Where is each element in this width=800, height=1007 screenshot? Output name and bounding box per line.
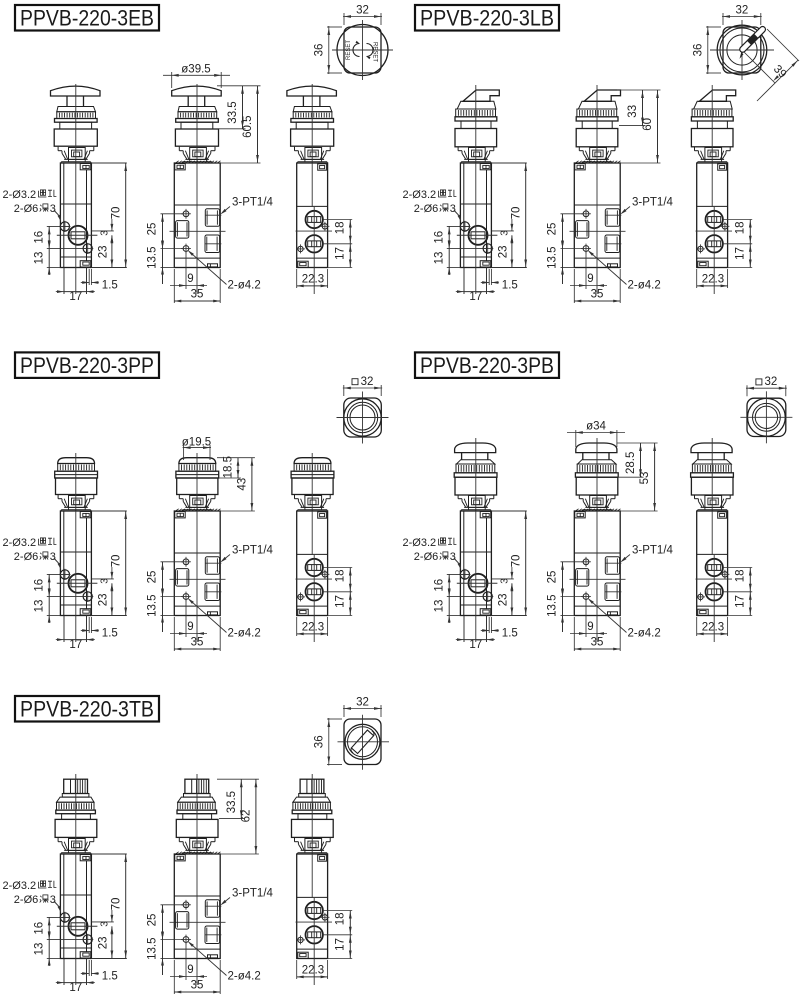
svg-text:17: 17: [335, 595, 347, 608]
svg-text:35: 35: [591, 289, 604, 301]
svg-text:3-PT1/4: 3-PT1/4: [232, 544, 274, 556]
svg-text:2-Ø3.2: 2-Ø3.2: [403, 189, 437, 201]
svg-text:53: 53: [639, 472, 651, 485]
svg-text:35: 35: [191, 289, 204, 301]
svg-text:18: 18: [735, 222, 747, 235]
svg-text:2-Ø3.2: 2-Ø3.2: [403, 537, 437, 549]
svg-text:70: 70: [511, 555, 523, 568]
svg-text:18: 18: [335, 222, 347, 235]
svg-text:22.3: 22.3: [302, 274, 324, 286]
svg-text:3: 3: [450, 203, 456, 215]
svg-text:16: 16: [434, 231, 446, 244]
svg-text:2-ø4.2: 2-ø4.2: [228, 628, 261, 640]
svg-text:2-ø4.2: 2-ø4.2: [628, 280, 661, 292]
svg-text:9: 9: [587, 621, 593, 633]
svg-text:3: 3: [50, 894, 56, 906]
svg-text:3-PT1/4: 3-PT1/4: [232, 887, 274, 899]
svg-text:PPVB-220-3PB: PPVB-220-3PB: [420, 353, 554, 378]
svg-text:PPVB-220-3LB: PPVB-220-3LB: [420, 6, 554, 31]
svg-text:23: 23: [98, 594, 110, 607]
svg-text:3: 3: [499, 230, 510, 236]
svg-text:RESET: RESET: [372, 42, 378, 62]
svg-text:9: 9: [187, 273, 193, 285]
svg-text:3: 3: [99, 921, 110, 927]
svg-text:60.5: 60.5: [242, 116, 254, 138]
svg-text:3: 3: [99, 578, 110, 584]
svg-text:70: 70: [111, 207, 123, 220]
svg-text:23: 23: [98, 246, 110, 259]
svg-text:62: 62: [240, 810, 252, 823]
svg-text:18: 18: [735, 570, 747, 583]
svg-text:17: 17: [69, 639, 82, 651]
svg-text:23: 23: [498, 246, 510, 259]
svg-text:22.3: 22.3: [702, 274, 724, 286]
svg-text:PPVB-220-3TB: PPVB-220-3TB: [20, 697, 154, 722]
svg-text:3-PT1/4: 3-PT1/4: [232, 196, 274, 208]
svg-text:2-ø4.2: 2-ø4.2: [628, 628, 661, 640]
svg-text:17: 17: [335, 247, 347, 260]
svg-text:36: 36: [693, 44, 705, 57]
svg-text:13.5: 13.5: [147, 595, 159, 617]
svg-text:1.5: 1.5: [502, 627, 518, 639]
svg-text:23: 23: [98, 937, 110, 950]
svg-text:18: 18: [335, 913, 347, 926]
svg-text:32: 32: [361, 376, 374, 388]
svg-text:16: 16: [34, 579, 46, 592]
svg-text:17: 17: [69, 982, 82, 994]
svg-text:3-PT1/4: 3-PT1/4: [632, 544, 674, 556]
svg-text:13: 13: [434, 252, 446, 265]
svg-text:18.5: 18.5: [223, 456, 235, 478]
svg-text:2-Ø6: 2-Ø6: [14, 203, 38, 215]
svg-text:2-ø4.2: 2-ø4.2: [228, 280, 261, 292]
svg-text:3-PT1/4: 3-PT1/4: [632, 196, 674, 208]
svg-text:3: 3: [450, 551, 456, 563]
svg-text:33: 33: [627, 105, 639, 118]
svg-text:25: 25: [147, 571, 159, 584]
svg-text:17: 17: [735, 595, 747, 608]
svg-text:13: 13: [34, 600, 46, 613]
svg-text:33.5: 33.5: [226, 791, 238, 813]
svg-text:ø19.5: ø19.5: [182, 437, 211, 449]
svg-text:2-Ø3.2: 2-Ø3.2: [3, 189, 37, 201]
svg-text:70: 70: [111, 898, 123, 911]
svg-text:36: 36: [314, 735, 326, 748]
svg-text:32: 32: [356, 5, 369, 17]
svg-text:2-ø4.2: 2-ø4.2: [228, 971, 261, 983]
svg-text:22.3: 22.3: [302, 965, 324, 977]
svg-text:2-Ø6: 2-Ø6: [414, 551, 438, 563]
svg-text:35: 35: [191, 980, 204, 992]
svg-text:PPVB-220-3EB: PPVB-220-3EB: [20, 6, 154, 31]
svg-text:13.5: 13.5: [547, 247, 559, 269]
svg-text:17: 17: [735, 247, 747, 260]
svg-text:32: 32: [736, 5, 749, 17]
svg-text:13: 13: [34, 252, 46, 265]
svg-text:28.5: 28.5: [625, 452, 637, 474]
svg-text:25: 25: [147, 914, 159, 927]
svg-text:33.5: 33.5: [227, 101, 239, 123]
svg-text:23: 23: [498, 594, 510, 607]
svg-text:9: 9: [187, 621, 193, 633]
svg-text:22.3: 22.3: [302, 622, 324, 634]
svg-text:17: 17: [69, 291, 82, 303]
svg-text:13.5: 13.5: [547, 595, 559, 617]
svg-text:1.5: 1.5: [102, 970, 118, 982]
svg-text:22.3: 22.3: [702, 622, 724, 634]
svg-text:PPVB-220-3PP: PPVB-220-3PP: [20, 353, 154, 378]
svg-text:2-Ø6: 2-Ø6: [14, 894, 38, 906]
svg-text:2-Ø3.2: 2-Ø3.2: [3, 537, 37, 549]
svg-text:2-Ø6: 2-Ø6: [414, 203, 438, 215]
svg-text:16: 16: [34, 922, 46, 935]
svg-text:2-Ø3.2: 2-Ø3.2: [3, 880, 37, 892]
svg-text:RESET: RESET: [346, 40, 352, 60]
svg-text:3: 3: [99, 230, 110, 236]
svg-text:60: 60: [642, 118, 654, 131]
svg-text:43: 43: [236, 478, 248, 491]
svg-text:9: 9: [187, 964, 193, 976]
svg-text:17: 17: [469, 639, 482, 651]
svg-text:36: 36: [314, 44, 326, 57]
svg-text:25: 25: [147, 223, 159, 236]
svg-text:9: 9: [587, 273, 593, 285]
svg-text:13.5: 13.5: [147, 938, 159, 960]
svg-text:32: 32: [356, 697, 369, 709]
svg-text:3: 3: [50, 551, 56, 563]
svg-text:1.5: 1.5: [502, 279, 518, 291]
svg-text:16: 16: [34, 231, 46, 244]
svg-text:17: 17: [469, 291, 482, 303]
svg-text:1.5: 1.5: [102, 279, 118, 291]
svg-text:ø39.5: ø39.5: [181, 64, 210, 76]
svg-text:35: 35: [191, 637, 204, 649]
svg-text:70: 70: [511, 207, 523, 220]
svg-text:3: 3: [499, 578, 510, 584]
svg-text:18: 18: [335, 570, 347, 583]
svg-text:13: 13: [434, 600, 446, 613]
svg-text:25: 25: [547, 223, 559, 236]
svg-text:1.5: 1.5: [102, 627, 118, 639]
svg-text:2-Ø6: 2-Ø6: [14, 551, 38, 563]
svg-text:13.5: 13.5: [147, 247, 159, 269]
svg-text:16: 16: [434, 579, 446, 592]
svg-text:35: 35: [591, 637, 604, 649]
svg-text:13: 13: [34, 943, 46, 956]
svg-text:70: 70: [111, 555, 123, 568]
svg-text:ø34: ø34: [586, 421, 606, 433]
svg-text:17: 17: [335, 938, 347, 951]
svg-text:32: 32: [765, 376, 778, 388]
svg-text:3: 3: [50, 203, 56, 215]
svg-text:25: 25: [547, 571, 559, 584]
